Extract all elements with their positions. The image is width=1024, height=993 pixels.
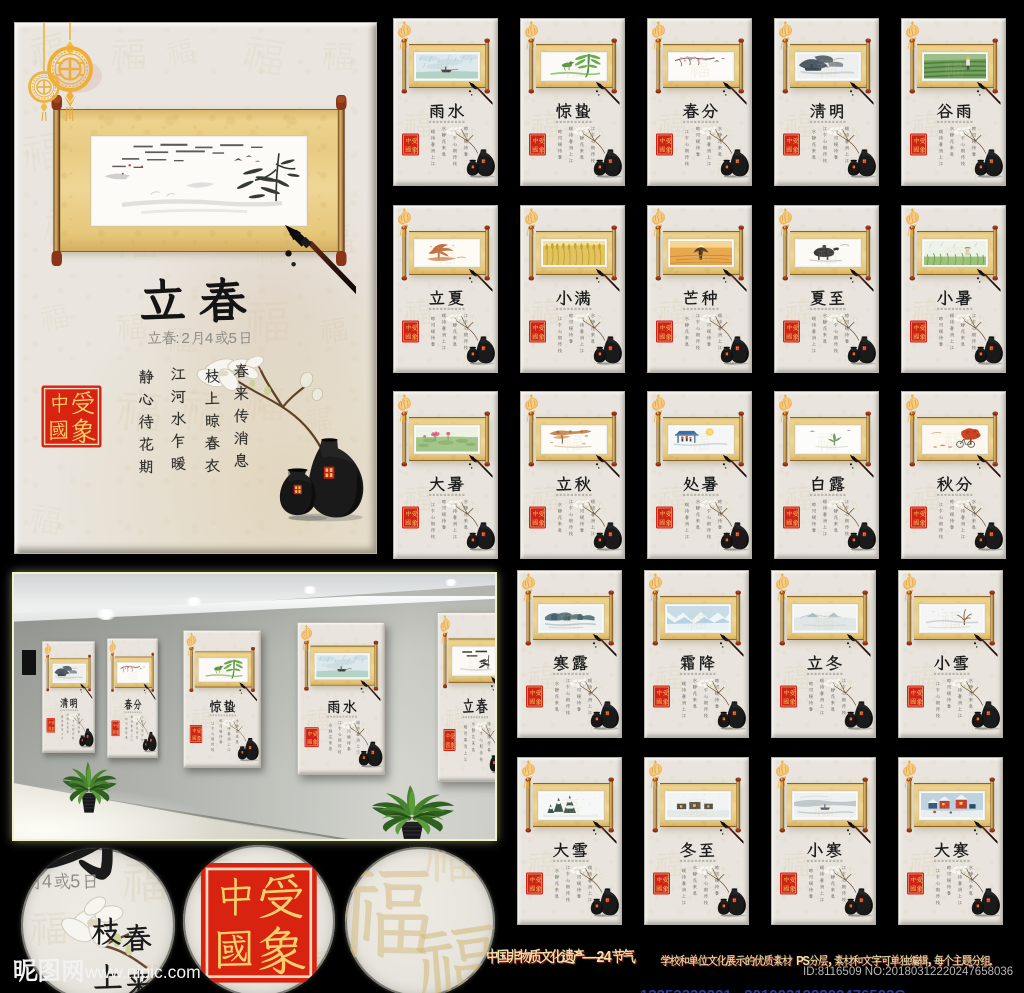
svg-text::: : [175,330,179,347]
svg-text:5: 5 [229,330,237,347]
svg-text:5: 5 [70,872,80,892]
svg-text:2: 2 [181,330,189,347]
svg-text:4: 4 [205,330,213,347]
svg-text:4: 4 [604,948,613,966]
svg-text:4: 4 [42,872,52,892]
